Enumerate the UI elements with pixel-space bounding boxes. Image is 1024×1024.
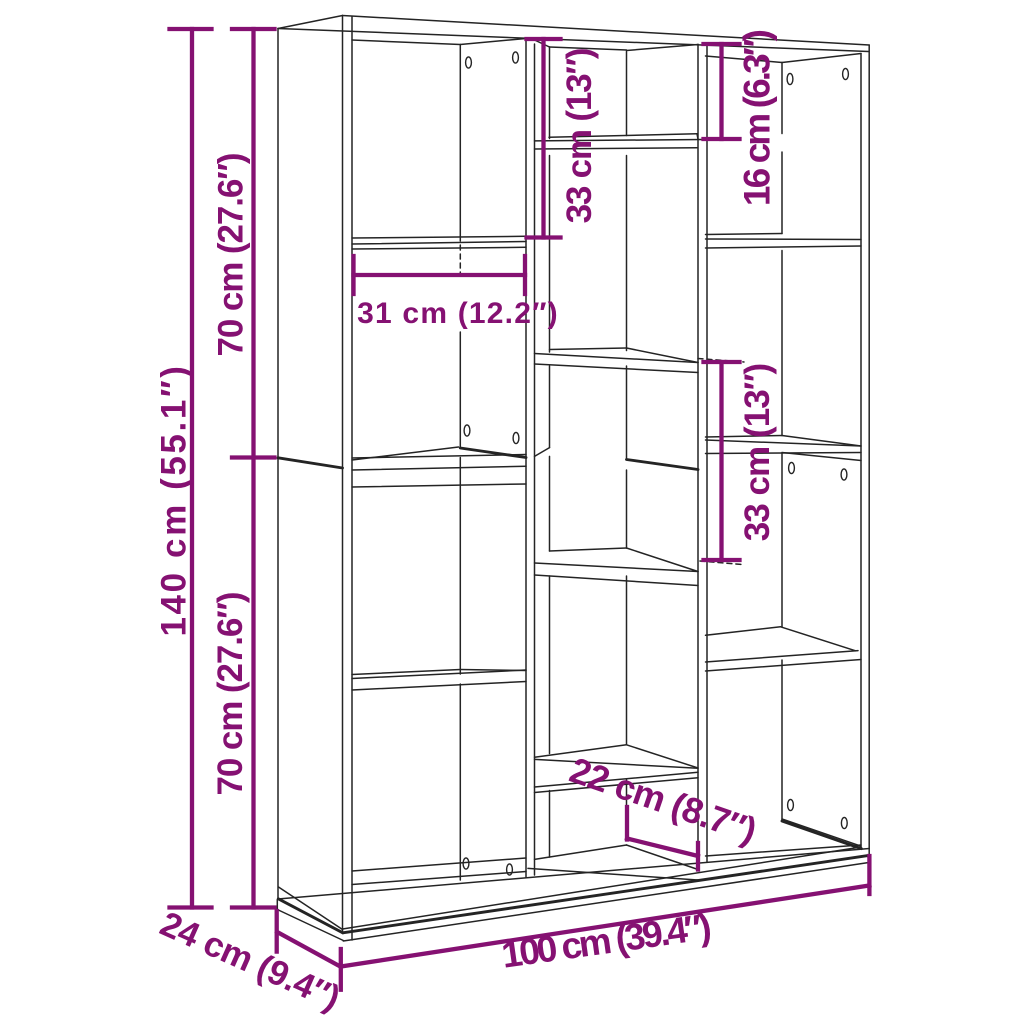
svg-text:140 cm (55.1″): 140 cm (55.1″) bbox=[155, 363, 194, 636]
svg-text:33 cm (13″): 33 cm (13″) bbox=[738, 364, 777, 542]
svg-text:16 cm (6.3″): 16 cm (6.3″) bbox=[737, 30, 778, 206]
svg-text:70 cm (27.6″): 70 cm (27.6″) bbox=[211, 593, 250, 796]
svg-text:33 cm (13″): 33 cm (13″) bbox=[560, 49, 599, 224]
svg-text:70 cm (27.6″): 70 cm (27.6″) bbox=[212, 154, 251, 357]
svg-text:31 cm (12.2″): 31 cm (12.2″) bbox=[357, 297, 559, 330]
